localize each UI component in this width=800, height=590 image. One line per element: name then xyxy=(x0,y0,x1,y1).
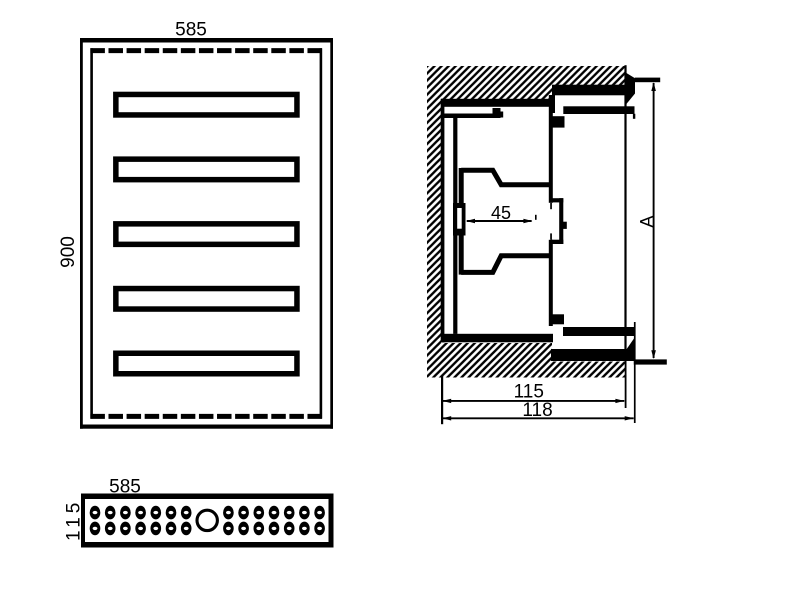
svg-text:118: 118 xyxy=(522,400,552,421)
svg-text:585: 585 xyxy=(175,19,207,40)
svg-text:115: 115 xyxy=(64,499,85,541)
svg-text:45: 45 xyxy=(491,203,511,223)
svg-text:900: 900 xyxy=(58,236,79,268)
svg-text:A: A xyxy=(637,216,657,228)
svg-text:585: 585 xyxy=(109,477,141,498)
